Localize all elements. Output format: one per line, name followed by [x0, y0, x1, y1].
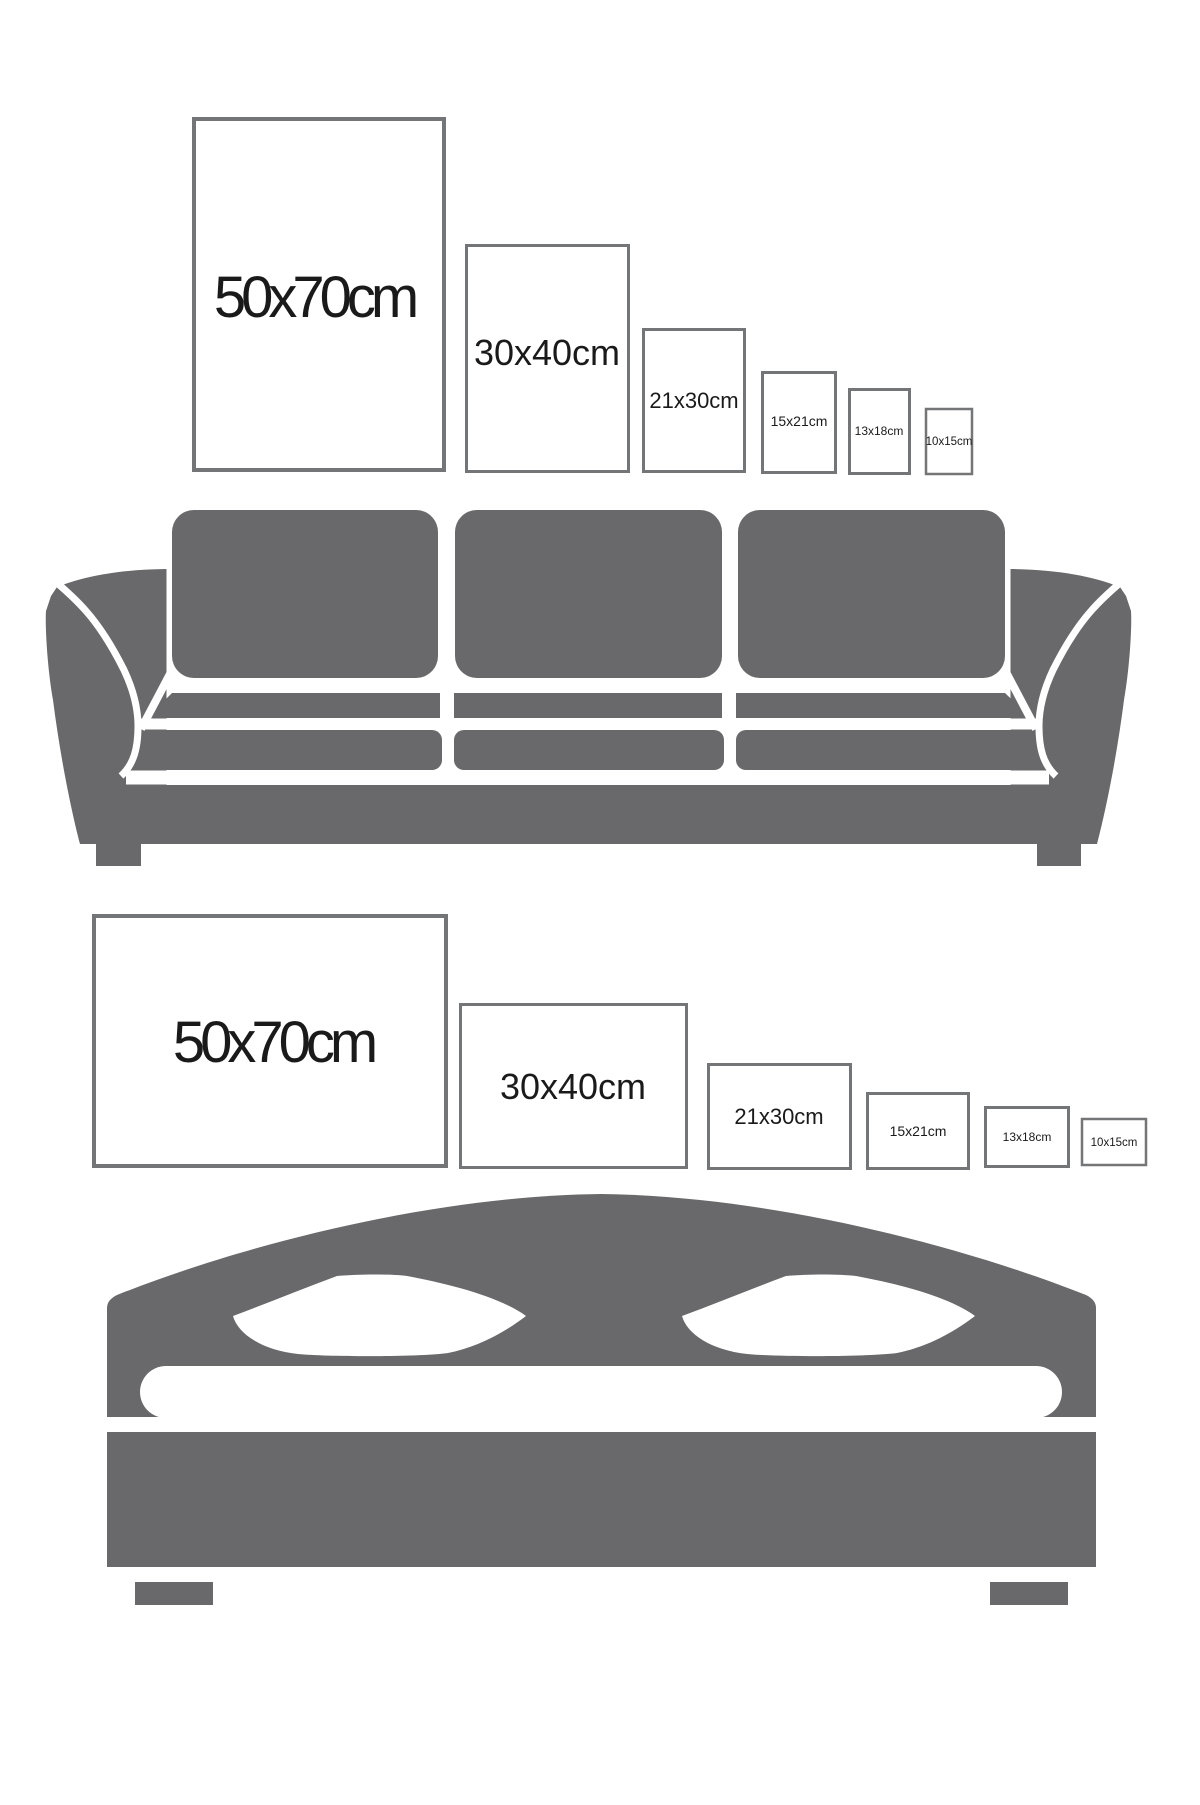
svg-text:30x40cm: 30x40cm	[500, 1066, 646, 1107]
svg-text:15x21cm: 15x21cm	[890, 1123, 947, 1139]
svg-text:10x15cm: 10x15cm	[1091, 1137, 1138, 1149]
svg-text:10x15cm: 10x15cm	[926, 436, 973, 448]
svg-text:13x18cm: 13x18cm	[855, 424, 904, 438]
svg-text:21x30cm: 21x30cm	[649, 388, 738, 413]
svg-text:15x21cm: 15x21cm	[771, 413, 828, 429]
svg-text:30x40cm: 30x40cm	[474, 332, 620, 373]
svg-text:13x18cm: 13x18cm	[1003, 1130, 1052, 1144]
svg-text:50x70cm: 50x70cm	[173, 1010, 375, 1075]
svg-text:21x30cm: 21x30cm	[734, 1104, 823, 1129]
svg-text:50x70cm: 50x70cm	[214, 265, 416, 330]
